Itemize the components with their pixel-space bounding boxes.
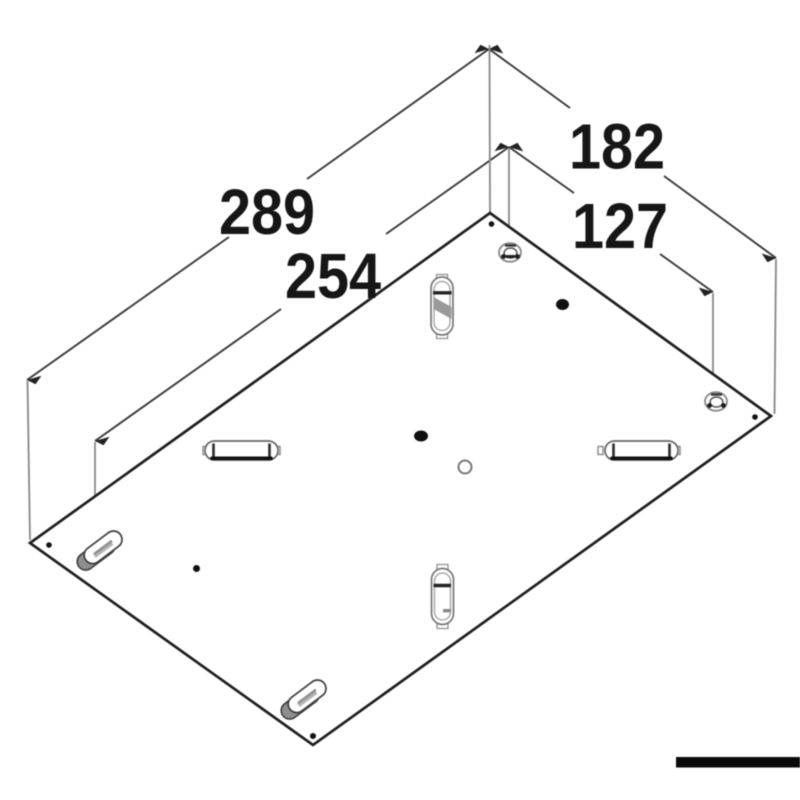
svg-text:289: 289 <box>219 176 315 247</box>
svg-text:254: 254 <box>285 240 381 311</box>
svg-text:127: 127 <box>572 190 668 261</box>
svg-text:182: 182 <box>569 111 665 182</box>
